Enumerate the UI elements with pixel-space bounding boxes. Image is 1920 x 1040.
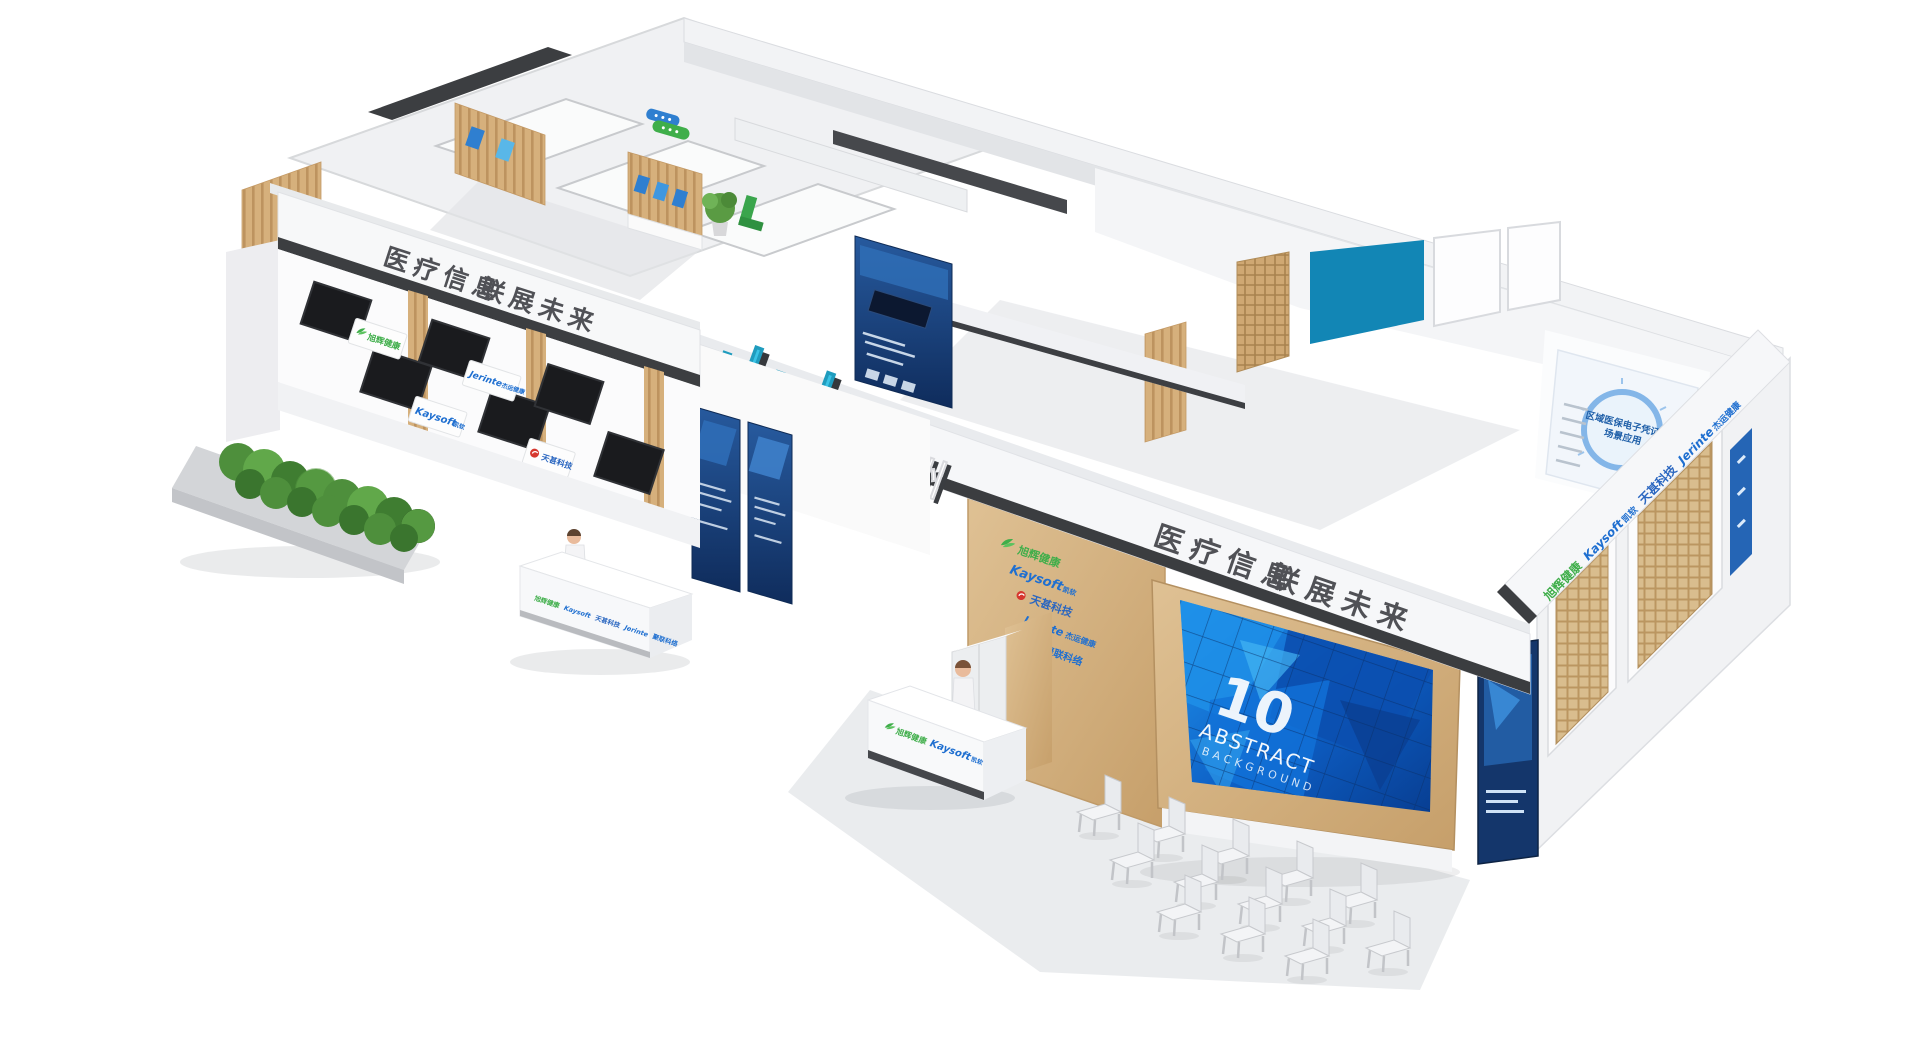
west-wall — [226, 240, 280, 442]
window-opening — [1508, 222, 1560, 310]
blue-poster-tall — [748, 422, 792, 604]
blue-poster-large — [855, 236, 952, 408]
booth-scene: 区域医保电子凭证 场景应用 旭辉健康Kaysoft凯软天甚科技Jerinte杰运… — [0, 0, 1920, 1040]
lattice-panel — [1237, 252, 1289, 372]
window-opening — [1434, 230, 1500, 326]
shadow — [510, 649, 690, 675]
booth-render: 区域医保电子凭证 场景应用 旭辉健康Kaysoft凯软天甚科技Jerinte杰运… — [0, 0, 1920, 1040]
left-reception: 旭辉健康Kaysoft天甚科技Jerinte聚联科络 — [510, 529, 692, 675]
blue-poster-strip — [1730, 428, 1752, 576]
hedge — [172, 443, 440, 584]
right-hall-front: 旭辉健康 Kaysoft 凯软 天甚科技 Jerinte 杰运健康 聚联科络 — [788, 498, 1538, 990]
